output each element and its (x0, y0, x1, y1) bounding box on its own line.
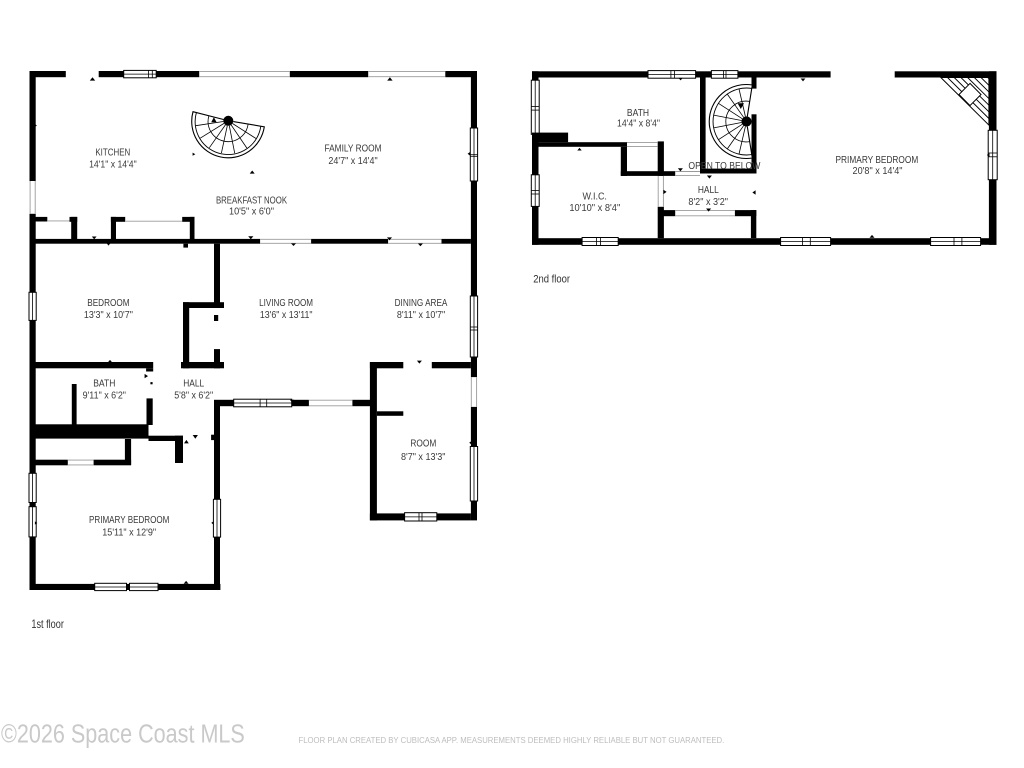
svg-text:BATH: BATH (93, 378, 115, 389)
svg-text:14'4" x 8'4": 14'4" x 8'4" (617, 118, 660, 129)
svg-text:FLOOR PLAN CREATED BY CUBICASA: FLOOR PLAN CREATED BY CUBICASA APP. MEAS… (299, 736, 725, 745)
svg-text:2nd floor: 2nd floor (533, 273, 570, 286)
svg-text:15'11" x 12'9": 15'11" x 12'9" (102, 527, 156, 539)
svg-text:BREAKFAST NOOK: BREAKFAST NOOK (216, 194, 287, 205)
svg-text:BATH: BATH (627, 107, 649, 118)
svg-text:ROOM: ROOM (410, 438, 436, 449)
svg-text:10'10" x 8'4": 10'10" x 8'4" (569, 203, 620, 214)
svg-text:13'3" x 10'7": 13'3" x 10'7" (84, 310, 133, 322)
svg-text:1st floor: 1st floor (31, 619, 64, 631)
svg-text:8'2" x 3'2": 8'2" x 3'2" (688, 197, 728, 209)
svg-text:BEDROOM: BEDROOM (87, 297, 129, 308)
svg-text:20'8" x 14'4": 20'8" x 14'4" (853, 166, 903, 177)
svg-text:5'8" x 6'2": 5'8" x 6'2" (174, 390, 213, 402)
svg-text:24'7" x 14'4": 24'7" x 14'4" (328, 155, 377, 167)
svg-text:13'6" x 13'11": 13'6" x 13'11" (260, 309, 313, 321)
svg-text:©2026 Space Coast MLS: ©2026 Space Coast MLS (1, 721, 245, 749)
svg-text:HALL: HALL (698, 184, 719, 195)
svg-text:8'7" x 13'3": 8'7" x 13'3" (401, 452, 445, 464)
svg-text:PRIMARY BEDROOM: PRIMARY BEDROOM (89, 514, 169, 525)
svg-text:8'11" x 10'7": 8'11" x 10'7" (397, 310, 445, 322)
svg-text:KITCHEN: KITCHEN (95, 147, 130, 158)
svg-text:10'5" x 6'0": 10'5" x 6'0" (229, 206, 274, 217)
svg-text:PRIMARY BEDROOM: PRIMARY BEDROOM (836, 154, 919, 165)
svg-text:9'11" x 6'2": 9'11" x 6'2" (83, 390, 126, 402)
svg-text:W.I.C.: W.I.C. (582, 191, 606, 203)
svg-text:FAMILY ROOM: FAMILY ROOM (325, 143, 382, 154)
svg-text:HALL: HALL (183, 378, 204, 389)
svg-text:DINING AREA: DINING AREA (395, 297, 449, 308)
svg-text:LIVING ROOM: LIVING ROOM (259, 297, 313, 308)
svg-text:OPEN TO BELOW: OPEN TO BELOW (688, 160, 760, 171)
svg-text:14'1" x 14'4": 14'1" x 14'4" (89, 159, 137, 170)
